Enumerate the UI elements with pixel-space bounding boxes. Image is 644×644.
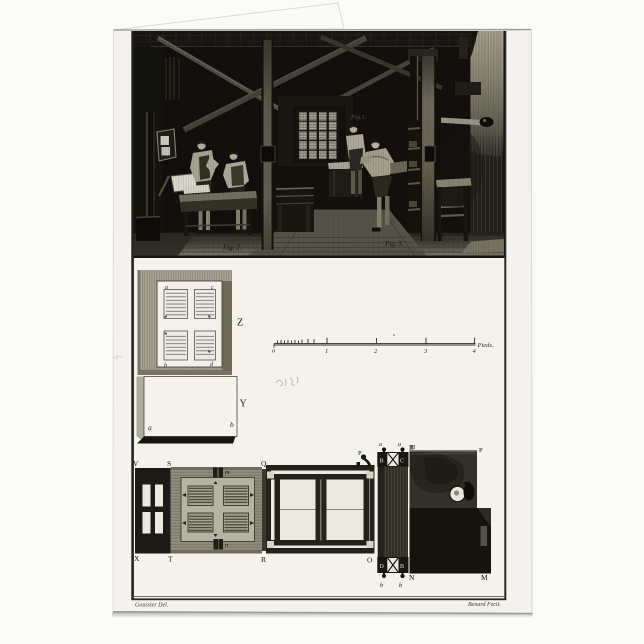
svg-text:Y: Y: [240, 399, 247, 410]
svg-text:D: D: [380, 564, 385, 570]
svg-text:a: a: [398, 442, 401, 448]
svg-text:b: b: [399, 583, 402, 589]
svg-text:X: X: [134, 554, 140, 563]
svg-text:a: a: [148, 423, 152, 432]
svg-text:b: b: [230, 420, 234, 429]
svg-text:n: n: [225, 543, 228, 549]
svg-text:b: b: [380, 583, 383, 589]
svg-text:S: S: [167, 459, 171, 468]
svg-text:Benard Fecit.: Benard Fecit.: [468, 602, 501, 608]
svg-text:Goussier Del.: Goussier Del.: [135, 603, 168, 609]
svg-text:b: b: [164, 363, 167, 369]
svg-text:R: R: [261, 555, 266, 564]
svg-text:B: B: [400, 564, 404, 570]
svg-text:V: V: [133, 459, 139, 468]
svg-text:c: c: [211, 285, 214, 291]
svg-text:P: P: [479, 447, 483, 454]
svg-text:O: O: [367, 556, 373, 565]
svg-text:N: N: [409, 573, 415, 582]
svg-text:T: T: [168, 555, 173, 564]
svg-text:B: B: [380, 459, 384, 465]
svg-text:m: m: [225, 470, 230, 476]
svg-text:P: P: [358, 450, 362, 457]
svg-text:Fig. 3.: Fig. 3.: [384, 240, 404, 248]
svg-text:a: a: [379, 442, 382, 448]
svg-text:Q: Q: [261, 459, 267, 468]
svg-text:C: C: [400, 459, 404, 465]
svg-text:M: M: [481, 573, 488, 582]
svg-text:a: a: [165, 285, 168, 291]
svg-text:1: 1: [325, 348, 328, 355]
svg-text:Z: Z: [237, 318, 243, 329]
svg-text:H: H: [411, 444, 416, 451]
svg-text:Pieds.: Pieds.: [477, 342, 494, 349]
